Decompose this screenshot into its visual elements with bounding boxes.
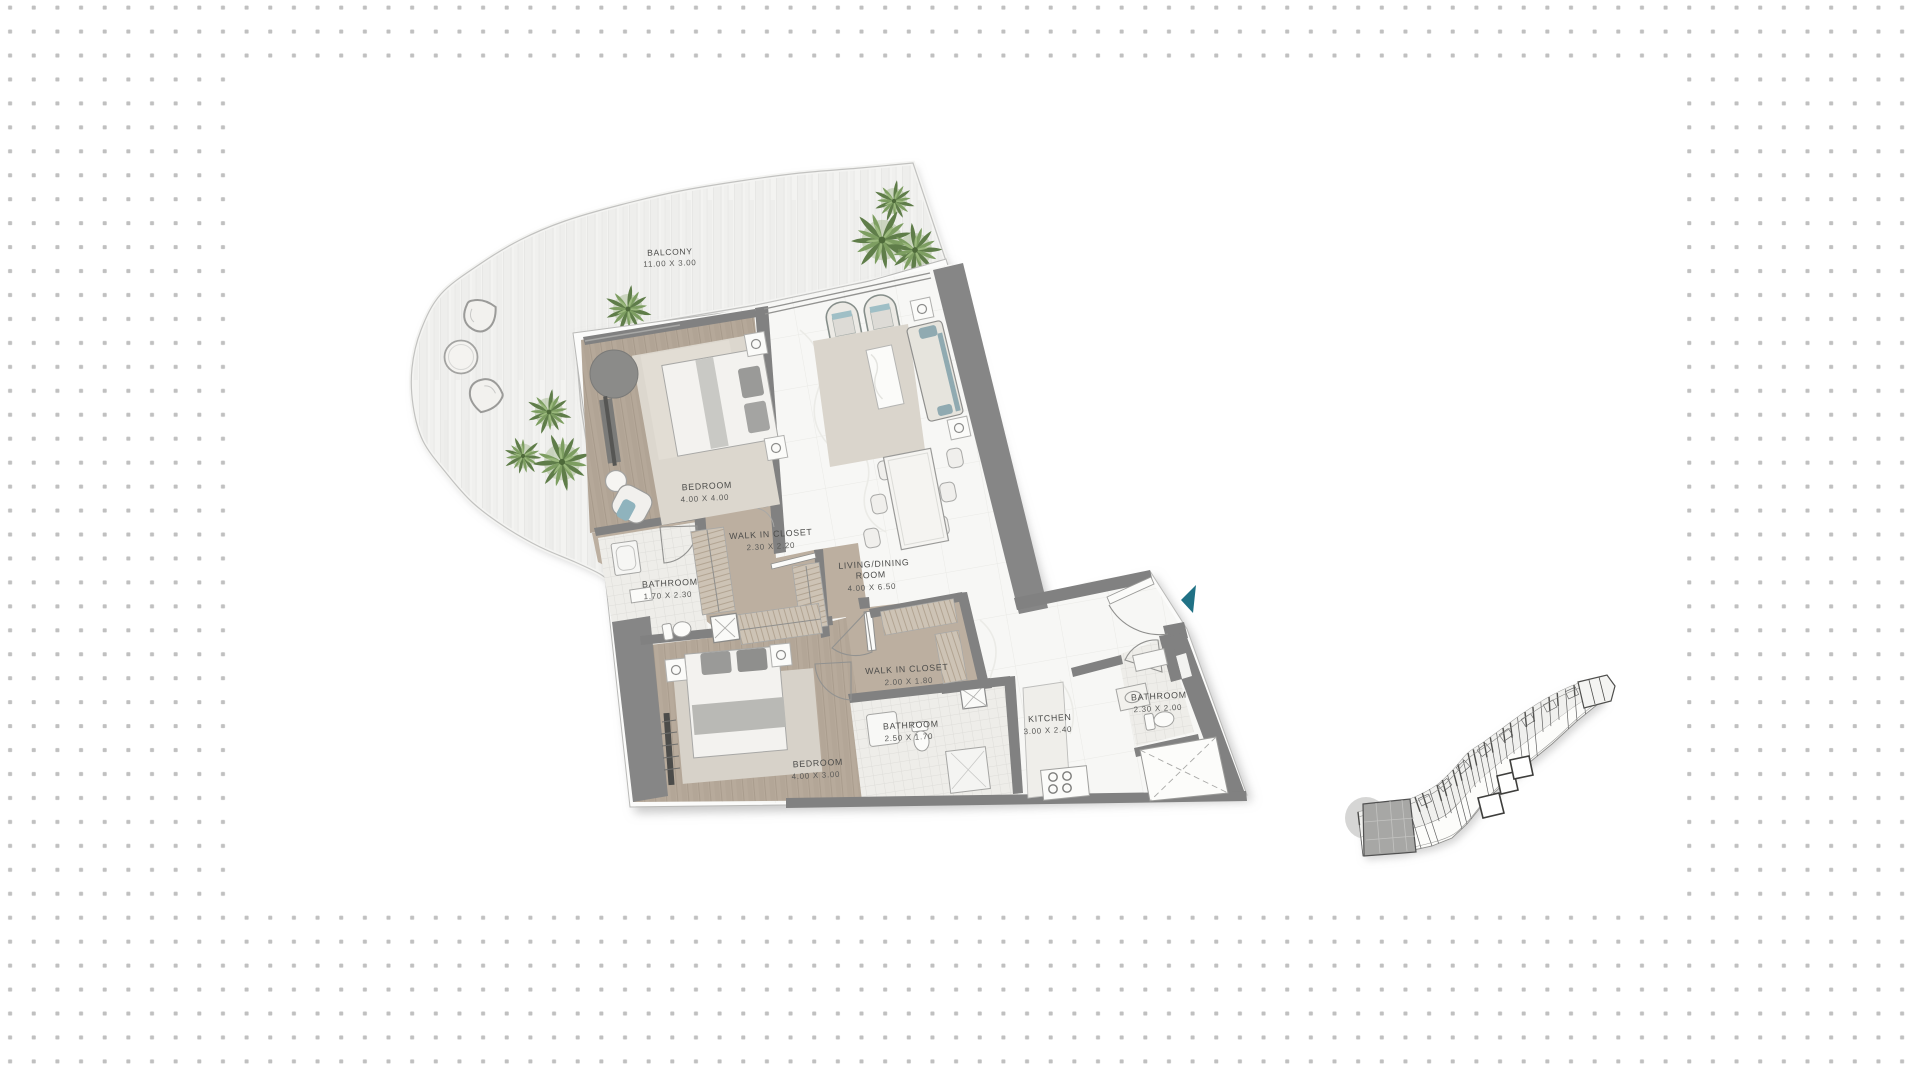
svg-text:11.00 X 3.00: 11.00 X 3.00 [643, 258, 696, 269]
svg-text:BALCONY: BALCONY [647, 246, 693, 258]
svg-text:ROOM: ROOM [856, 569, 887, 581]
